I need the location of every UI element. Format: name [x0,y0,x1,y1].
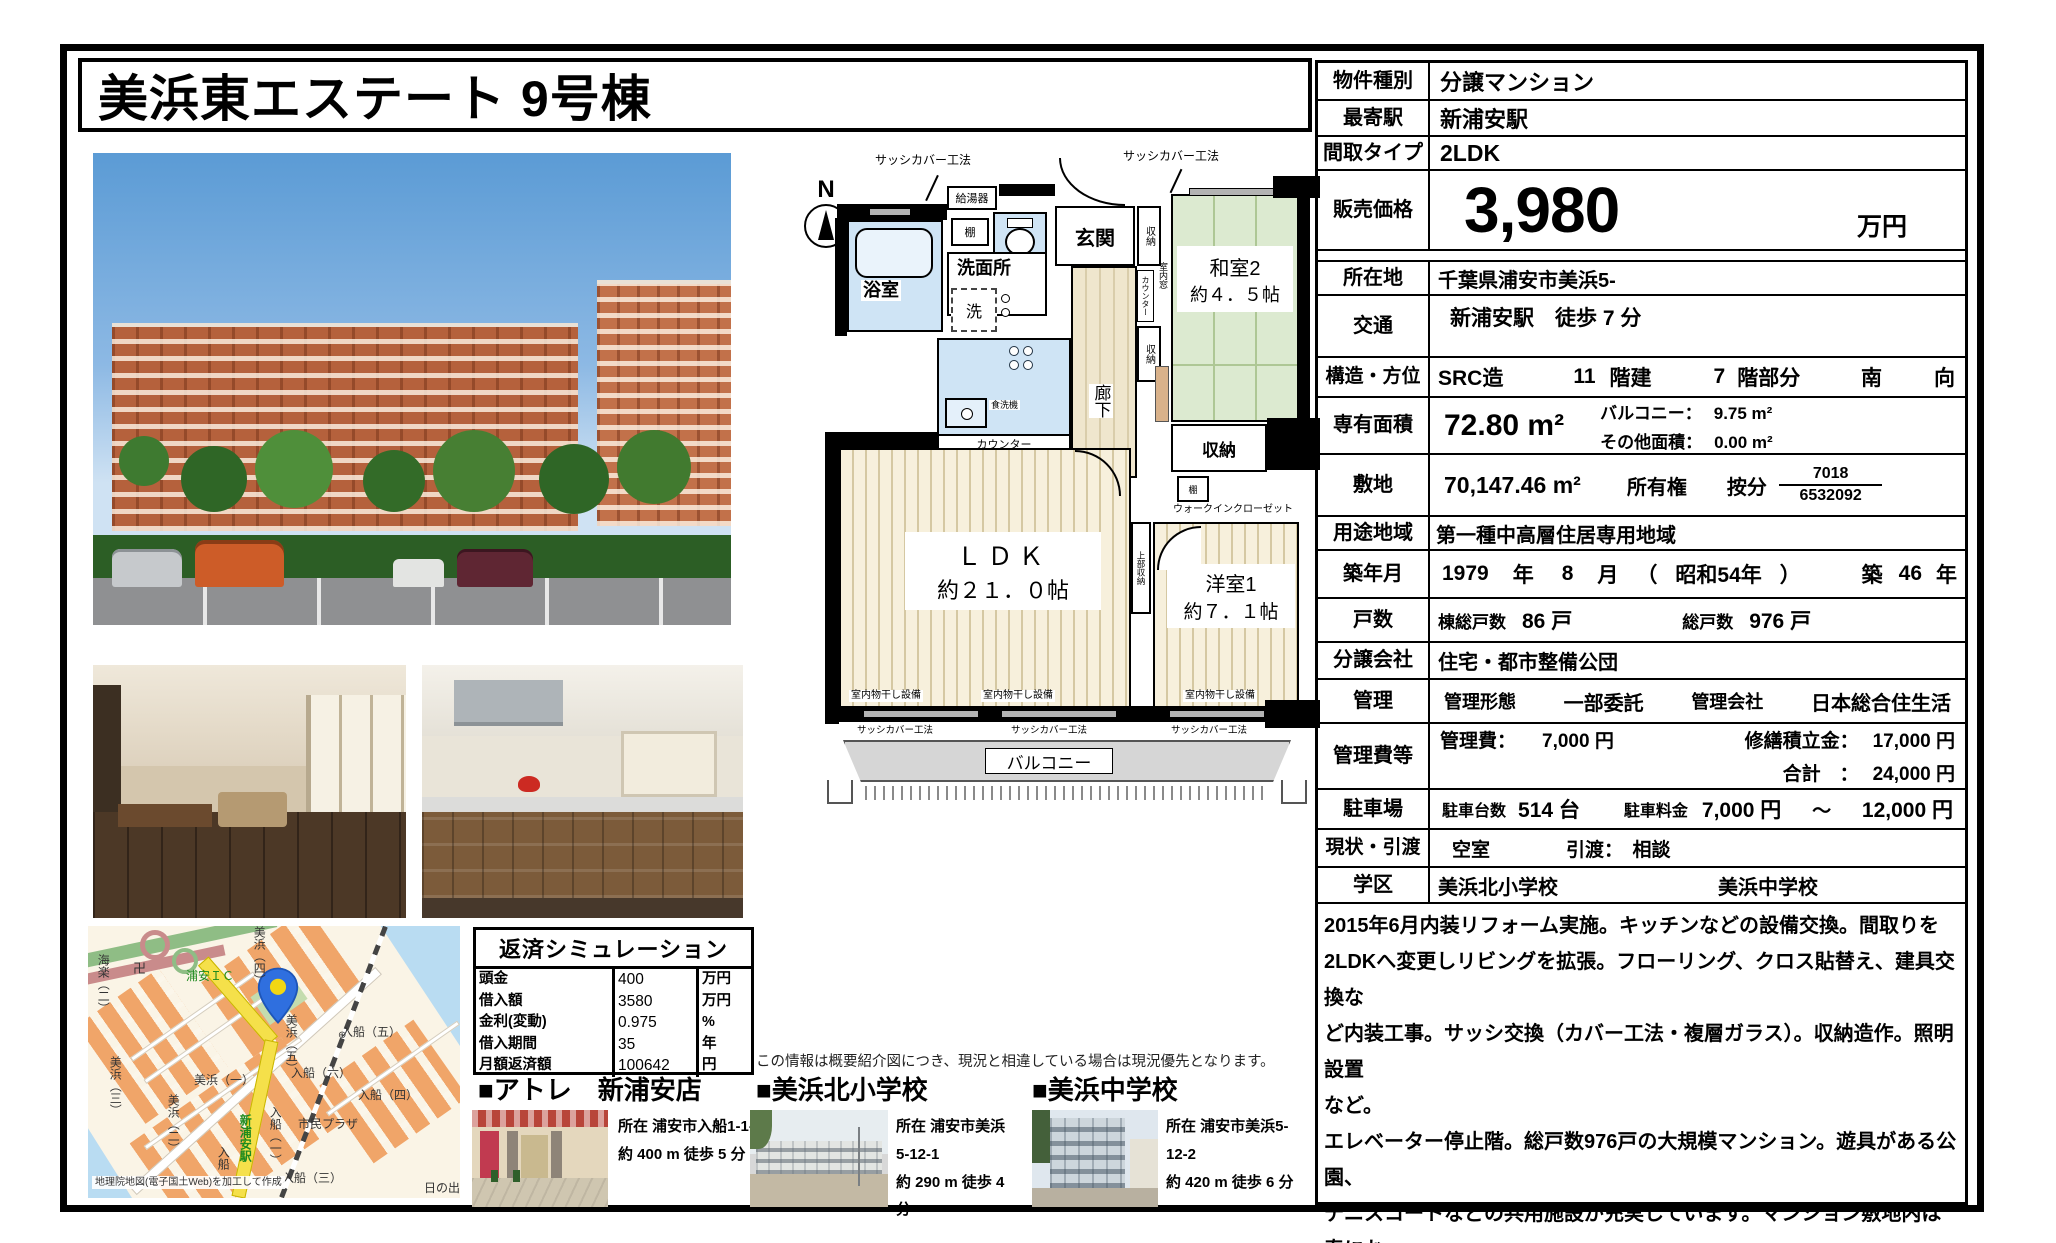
units-bldg-label: 棟総戸数 [1438,608,1506,633]
sim-unit: 円 [696,1055,751,1077]
area-map: 海楽（二） 卍 浦安ＩＣ 美浜（四） 美浜（五） 入船（五） 美浜（一） 入船（… [88,926,460,1198]
table-row: 専有面積 72.80 m² バルコニー：9.75 m² その他面積：0.00 m… [1318,398,1965,455]
photo-awning [472,1110,608,1127]
row-value: 新浦安駅 徒歩 7 分 [1430,296,1965,356]
compass-arrow-icon [818,210,834,240]
ratio-label: 按分 [1727,471,1767,500]
row-value: SRC造 11 階建 7 階部分 南 向 [1430,358,1965,396]
sim-value: 35 [612,1034,696,1056]
table-row: 最寄駅 新浦安駅 [1318,101,1965,137]
counter-strip: カウンター [1137,270,1154,322]
table-row: 用途地域 第一種中高層住居専用地域 [1318,517,1965,551]
elementary-school-photo [750,1110,888,1207]
table-row: 管理費等 管理費：7,000 円 修繕積立金：17,000 円 合計 ：24,0… [1318,724,1965,790]
sash-label: サッシカバー工法 [1121,150,1221,164]
room-label: 上部収納 [1135,551,1147,585]
photo-car-orange [195,540,284,587]
status: 空室 [1452,835,1490,862]
room-washitsu: 和室2 約４．５帖 [1171,194,1299,422]
row-value: 3,980 万円 [1430,171,1965,249]
fee-line: 管理費：7,000 円 [1440,726,1614,753]
dishwasher-knob [961,408,973,420]
disclaimer-text: この情報は概要紹介図につき、現況と相違している場合は現況優先となります。 [756,1050,1275,1071]
row-label: 戸数 [1318,599,1430,641]
stove-burner [1009,346,1019,356]
repair-label: 修繕積立金： [1745,731,1859,752]
access: 新浦安駅 徒歩 7 分 [1450,302,1641,332]
shelf-box: 棚 [1177,476,1209,502]
room-label: バルコニー [1007,749,1092,774]
parking-fee-max: 12,000 円 [1862,794,1953,824]
plumbing-circle [1001,294,1010,303]
water-heater-box: 給湯器 [947,186,997,210]
direction: 南 [1861,362,1882,392]
row-label: 築年月 [1318,551,1430,597]
sash-label: サッシカバー工法 [855,726,935,737]
row-value: 駐車台数 514 台 駐車料金 7,000 円 ～ 12,000 円 [1430,790,1965,828]
photo-tiled-floor [472,1178,608,1207]
table-row: 築年月 1979 年 8 月 （ 昭和54年 ） 築 46 年 [1318,551,1965,599]
zoning: 第一種中高層住居専用地域 [1436,519,1676,548]
table-row: 物件種別 分譲マンション [1318,63,1965,101]
room-label: 給湯器 [956,190,989,206]
location: 千葉県浦安市美浜5- [1438,264,1616,293]
age-unit: 年 [1936,559,1957,589]
title-box: 美浜東エステート 9号棟 [78,58,1312,132]
row-label: 専有面積 [1318,398,1430,453]
map-label: 美浜（四） [252,926,265,986]
price-unit: 万円 [1857,207,1907,243]
compass-north-icon: N [803,176,849,204]
table-row: 間取タイプ 2LDK [1318,137,1965,171]
built-year-unit: 年 [1513,559,1534,589]
laundry-label: 室内物干し設備 [1183,690,1257,702]
sim-unit: 年 [696,1034,751,1056]
window [869,208,911,216]
photo-car-silver [112,549,182,587]
era: 昭和54年 [1675,559,1761,589]
parking-fee: 7,000 円 [1702,794,1781,824]
floors: 11 [1573,365,1595,389]
photo-range-hood [454,680,563,726]
row-label: 現状・引渡 [1318,830,1430,866]
sim-label: 借入期間 [476,1034,612,1056]
fee-label: 管理費： [1440,731,1516,752]
sim-unit: 万円 [696,991,751,1013]
sim-title: 返済シミュレーション [476,930,751,969]
room-label: 棚 [1188,483,1197,496]
fees-line1: 管理費：7,000 円 修繕積立金：17,000 円 [1440,726,1955,753]
mgmt-form-label: 管理形態 [1444,688,1516,714]
room-label: 棚 [965,224,976,240]
room-label: 収納 [1142,226,1157,246]
photo-floor [93,812,406,918]
toilet-tank [1007,218,1033,228]
seller: 住宅・都市整備公団 [1438,646,1618,675]
floor-plan: N サッシカバー工法 サッシカバー工法 浴室 給湯器 棚 洗面所 洗 玄関 収納… [785,148,1320,813]
place-heading-elementary: ■美浜北小学校 [756,1070,928,1107]
photo-car-maroon [457,549,534,587]
tilde: ～ [1812,796,1831,823]
place-distance: 約 290 m 徒歩 4 分 [896,1169,1018,1225]
ratio-denominator: 6532092 [1799,486,1861,505]
room-label: 浴室 [861,280,901,301]
floor: 7 [1714,365,1726,389]
sim-value: 0.975 [612,1012,696,1034]
living-photo [93,665,406,918]
row-label: 所在地 [1318,262,1430,294]
place-caption: 所在 浦安市入船1-1-1 約 400 m 徒歩 5 分 [618,1113,768,1169]
repair: 17,000 円 [1873,731,1955,752]
map-label: 海楽（二） [96,954,109,1014]
row-label: 分譲会社 [1318,643,1430,678]
room-label: 和室2 [1209,252,1260,281]
tenure: 所有権 [1627,471,1687,500]
sim-value: 400 [612,969,696,991]
row-label: 管理費等 [1318,724,1430,788]
sim-value: 3580 [612,991,696,1013]
parking-count-label: 駐車台数 [1442,797,1506,821]
map-label: 美浜（一） [194,1074,254,1087]
sash-label: サッシカバー工法 [1169,726,1249,737]
photo-schoolyard [750,1174,888,1207]
mgmt-form: 一部委託 [1564,687,1644,716]
row-value: 70,147.46 m² 所有権 按分 7018 6532092 [1430,455,1965,515]
repair-line: 修繕積立金：17,000 円 [1745,726,1955,753]
map-label: 美浜（五） [284,1014,297,1074]
units-total: 976 戸 [1749,605,1811,635]
photo-pillar [551,1131,562,1180]
parking-fee-label: 駐車料金 [1624,797,1688,821]
room-label-box: ＬＤＫ 約２１．０帖 [905,532,1101,610]
shelf-box: 棚 [951,218,989,246]
place-address: 所在 浦安市入船1-1-1 [618,1113,768,1141]
row-label: 敷地 [1318,455,1430,515]
row-value: 千葉県浦安市美浜5- [1430,262,1965,294]
photo-pole [858,1127,861,1185]
sash-label: サッシカバー工法 [1009,726,1089,737]
built-month-unit: 月 [1597,559,1618,589]
wall [999,184,1055,196]
map-label: 入船（六） [291,1067,351,1080]
property-type: 分譲マンション [1440,65,1594,97]
room-label: 玄関 [1075,222,1115,251]
age-label: 築 [1862,559,1883,589]
units-total-label: 総戸数 [1682,608,1733,633]
tatami-line [1173,364,1297,366]
dishwasher-label: 食洗機 [989,400,1020,410]
place-heading-junior-high: ■美浜中学校 [1032,1070,1178,1107]
closet-strip [1155,366,1169,422]
nearest-station: 新浦安駅 [1440,102,1528,134]
floors-unit: 階建 [1610,362,1652,392]
room-storage: 収納 [1171,424,1267,472]
plumbing-circle [1001,308,1010,317]
entrance-door-arc [1059,158,1125,206]
sim-label: 金利(変動) [476,1012,612,1034]
photo-school-building [1050,1118,1126,1188]
other-area-line: その他面積：0.00 m² [1600,428,1773,453]
row-label: 学区 [1318,868,1430,902]
row-label: 物件種別 [1318,63,1430,99]
row-label: 販売価格 [1318,171,1430,249]
place-caption: 所在 浦安市美浜5-12-1 約 290 m 徒歩 4 分 [896,1113,1018,1224]
row-label: 用途地域 [1318,517,1430,549]
table-row: 販売価格 3,980 万円 [1318,171,1965,251]
row-label: 最寄駅 [1318,101,1430,135]
corridor: 廊下 [1071,266,1137,478]
bathtub [855,228,933,278]
place-caption: 所在 浦安市美浜5-12-2 約 420 m 徒歩 6 分 [1166,1113,1296,1196]
photo-wall [1130,1139,1158,1188]
property-detail-table: 物件種別 分譲マンション 最寄駅 新浦安駅 間取タイプ 2LDK 販売価格 3,… [1315,60,1968,1205]
place-distance: 約 400 m 徒歩 5 分 [618,1141,768,1169]
photo-trees [119,436,169,486]
balcony-label-box: バルコニー [985,748,1113,774]
room-size: 約４．５帖 [1190,281,1280,307]
dishwasher [945,398,987,428]
room-label: 洗面所 [955,258,1013,279]
temple-icon: 卍 [133,962,146,976]
other-area: 0.00 m² [1714,433,1773,452]
room-size: 約７．１帖 [1183,597,1278,624]
row-value: 管理形態 一部委託 管理会社 日本総合住生活 [1430,680,1965,722]
row-label: 間取タイプ [1318,137,1430,169]
kitchen-photo [422,665,743,918]
mgmt-co: 日本総合住生活 [1811,687,1951,716]
place-address: 所在 浦安市美浜5-12-1 [896,1113,1018,1169]
wic-label: ウォークインクローゼット [1171,504,1295,516]
page-title: 美浜東エステート 9号棟 [82,59,652,131]
row-label: 交通 [1318,296,1430,356]
direction-unit: 向 [1934,362,1955,392]
wall [825,432,939,448]
stove-burner [1023,360,1033,370]
photo-sideboard [118,804,212,827]
table-row: 駐車場 駐車台数 514 台 駐車料金 7,000 円 ～ 12,000 円 [1318,790,1965,830]
sash-pointer-line [925,175,939,201]
row-label: 駐車場 [1318,790,1430,828]
map-label: 美浜（二） [166,1094,179,1154]
total: 24,000 円 [1873,759,1955,786]
wall [835,218,847,336]
photo-cabinets [422,812,743,898]
handover: 引渡： 相談 [1566,835,1671,862]
row-value: 1979 年 8 月 （ 昭和54年 ） 築 46 年 [1430,551,1965,597]
paren: （ [1636,559,1657,589]
room-label: 廊下 [1089,384,1113,418]
map-label: 市民プラザ [298,1118,358,1131]
ratio-fraction: 7018 6532092 [1779,465,1883,506]
built-month: 8 [1562,562,1574,586]
window [1189,188,1277,196]
ratio-numerator: 7018 [1779,465,1883,486]
sash-label: サッシカバー工法 [873,154,973,168]
table-row: 敷地 70,147.46 m² 所有権 按分 7018 6532092 [1318,455,1965,517]
units-bldg: 86 戸 [1522,605,1572,635]
room-label: ＬＤＫ [956,537,1049,573]
photo-counter [422,797,743,812]
table-separator [1318,251,1965,262]
balcony-area: 9.75 m² [1714,404,1773,423]
laundry-label: 室内物干し設備 [849,690,923,702]
row-value: 72.80 m² バルコニー：9.75 m² その他面積：0.00 m² [1430,398,1965,453]
mgmt-co-label: 管理会社 [1691,688,1763,714]
wall [1297,192,1310,424]
balcony-end-mark [1281,780,1307,804]
built-year: 1979 [1442,562,1489,586]
room-size: 約２１．０帖 [937,573,1069,605]
room-label: 収納 [1142,344,1157,364]
school-elementary: 美浜北小学校 [1438,871,1558,900]
window [1001,710,1117,718]
balcony-area-line: バルコニー：9.75 m² [1600,399,1773,424]
structure: SRC造 [1438,362,1503,392]
row-label: 管理 [1318,680,1430,722]
map-label: 日の出 [424,1182,460,1195]
exclusive-area: 72.80 m² [1444,409,1564,443]
row-value: 分譲マンション [1430,63,1965,99]
sim-label: 借入額 [476,991,612,1013]
room-label: カウンター [1140,276,1151,316]
floor-unit: 階部分 [1737,362,1800,392]
atre-photo [472,1110,608,1207]
property-description: 2015年6月内装リフォーム実施。キッチンなどの設備交換。間取りを 2LDKへ変… [1318,904,1965,1243]
place-distance: 約 420 m 徒歩 6 分 [1166,1169,1296,1197]
map-label: 入船 [216,1146,229,1170]
table-row: 戸数 棟総戸数 86 戸 総戸数 976 戸 [1318,599,1965,643]
row-value: 第一種中高層住居専用地域 [1430,517,1965,549]
room-label: 収納 [1202,436,1236,461]
room-youshitsu: 洋室1 約７．１帖 [1153,522,1299,710]
sim-unit: 万円 [696,969,751,991]
sub-areas: バルコニー：9.75 m² その他面積：0.00 m² [1600,399,1773,453]
room-label: 洗 [966,298,982,322]
map-label-station: 新浦安駅 [238,1114,251,1162]
fee: 7,000 円 [1542,731,1614,752]
photo-floor [422,898,743,918]
room-entrance: 玄関 [1055,206,1135,266]
row-value: 美浜北小学校 美浜中学校 [1430,868,1965,902]
school-junior-high: 美浜中学校 [1718,871,1818,900]
photo-tree [1032,1110,1050,1163]
table-row: 学区 美浜北小学校 美浜中学校 [1318,868,1965,904]
photo-window [306,695,406,822]
place-address: 所在 浦安市美浜5-12-2 [1166,1113,1296,1169]
sash-pointer-line [1170,169,1183,193]
sim-label: 頭金 [476,969,612,991]
wall [825,432,839,724]
room-label: 洋室1 [1205,568,1256,597]
balcony-area-label: バルコニー： [1600,404,1702,423]
window [863,710,979,718]
photo-school-building [756,1141,883,1174]
upper-storage-strip: 上部収納 [1131,522,1151,614]
wall [1265,700,1320,728]
place-heading-atre: ■アトレ 新浦安店 [478,1070,702,1107]
land-area: 70,147.46 m² [1444,472,1581,499]
parking-count: 514 台 [1518,794,1580,824]
row-value: 新浦安駅 [1430,101,1965,135]
indoor-window-label: 室内窓 [1157,262,1170,289]
map-label: 美浜（三） [108,1056,121,1116]
stove-burner [1023,346,1033,356]
loan-simulation-table: 返済シミュレーション 頭金 400 万円 借入額 3580 万円 金利(変動) … [473,927,754,1075]
stove-burner [1009,360,1019,370]
paren: ） [1780,559,1801,589]
row-value: 空室 引渡： 相談 [1430,830,1965,866]
window [1169,710,1265,718]
map-label: 入船（五） [341,1026,401,1039]
row-value: 2LDK [1430,137,1965,169]
storage-strip: 収納 [1137,206,1161,266]
table-row: 交通 新浦安駅 徒歩 7 分 [1318,296,1965,358]
table-row: 所在地 千葉県浦安市美浜5- [1318,262,1965,296]
junior-high-photo [1032,1110,1158,1207]
photo-car-white [393,559,444,587]
other-area-label: その他面積： [1600,433,1702,452]
map-attribution: 地理院地図(電子国土Web)を加工して作成 [92,1176,285,1189]
sim-unit: % [696,1012,751,1034]
row-value: 住宅・都市整備公団 [1430,643,1965,678]
table-row: 管理 管理形態 一部委託 管理会社 日本総合住生活 [1318,680,1965,724]
balcony-end-mark [827,780,853,804]
room-label-box: 洋室1 約７．１帖 [1167,564,1295,628]
map-label: 入船（四） [358,1089,418,1102]
map-label-ic: 浦安ＩＣ [186,970,234,983]
row-label: 構造・方位 [1318,358,1430,396]
wall [1267,418,1320,470]
map-label: 入船（一） [268,1106,281,1166]
photo-shrub [513,1170,520,1182]
flyer-page: 美浜東エステート 9号棟 N サッシカ [0,0,2056,1243]
photo-building-right [597,280,731,525]
age: 46 [1899,562,1922,586]
photo-shrub [491,1170,498,1182]
total-label: 合計 ： [1783,759,1859,786]
building-photo [93,153,731,625]
washer-space: 洗 [951,288,997,332]
room-bath: 浴室 [847,220,943,332]
price-value: 3,980 [1464,173,1619,247]
photo-window [621,731,717,797]
row-value: 管理費：7,000 円 修繕積立金：17,000 円 合計 ：24,000 円 [1430,724,1965,788]
photo-entrance [521,1135,548,1178]
layout-type: 2LDK [1440,140,1500,167]
map-label: 入船（三） [282,1172,342,1185]
table-row: 構造・方位 SRC造 11 階建 7 階部分 南 向 [1318,358,1965,398]
room-label-box: 和室2 約４．５帖 [1177,246,1293,312]
fees-line2: 合計 ：24,000 円 [1440,759,1955,786]
sim-grid: 頭金 400 万円 借入額 3580 万円 金利(変動) 0.975 % 借入期… [476,969,751,1077]
photo-sofa [218,792,287,827]
balcony-hatch [865,786,1265,800]
map-interchange-loop [140,930,170,960]
laundry-label: 室内物干し設備 [981,690,1055,702]
photo-building-left [112,323,578,531]
kitchen-area: 食洗機 [937,338,1071,448]
photo-ground [1032,1188,1158,1207]
row-value: 棟総戸数 86 戸 総戸数 976 戸 [1430,599,1965,641]
table-row: 現状・引渡 空室 引渡： 相談 [1318,830,1965,868]
table-row: 分譲会社 住宅・都市整備公団 [1318,643,1965,680]
map-symbol: ⊕ [338,1030,346,1041]
photo-red-kettle [518,776,540,792]
